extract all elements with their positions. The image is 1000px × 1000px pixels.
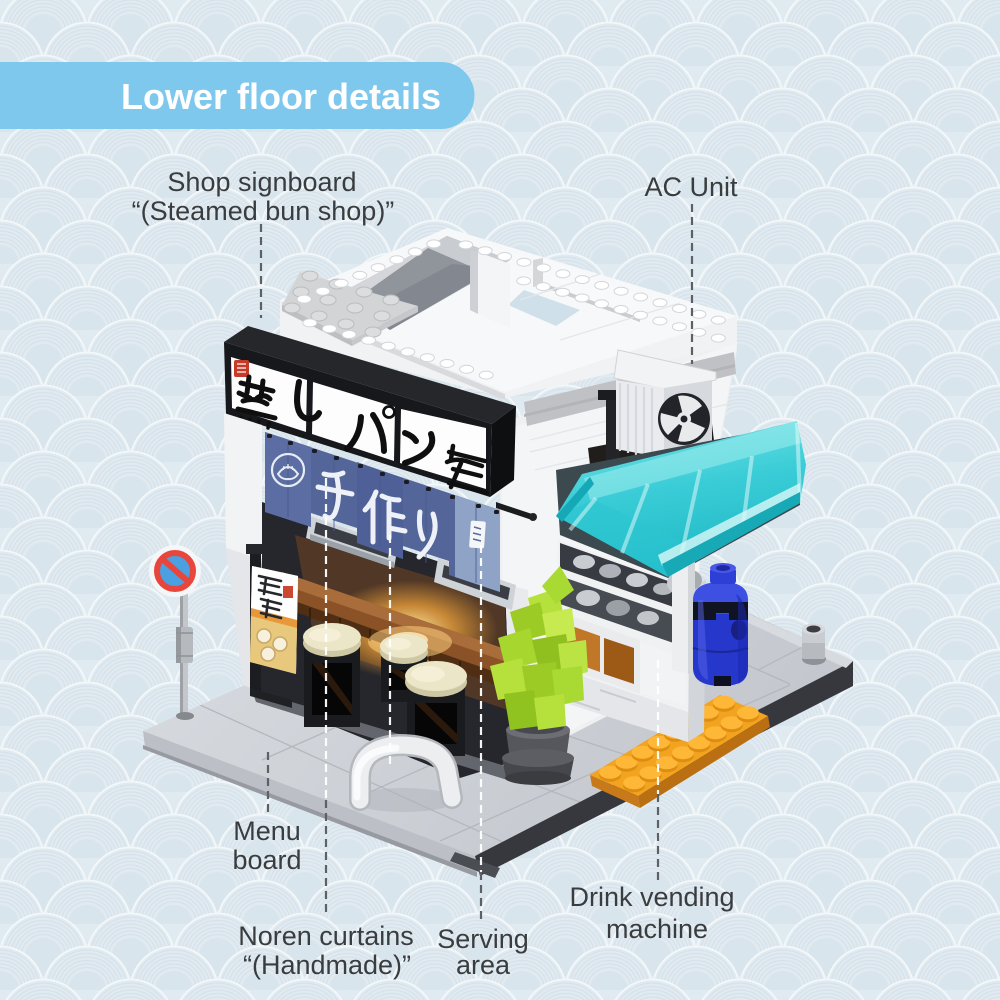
svg-text:Shop signboard: Shop signboard	[167, 167, 356, 197]
svg-text:Drink vending: Drink vending	[569, 882, 734, 912]
svg-text:Noren curtains: Noren curtains	[238, 921, 414, 951]
svg-text:area: area	[456, 950, 511, 980]
svg-text:machine: machine	[606, 914, 708, 944]
svg-text:Lower floor details: Lower floor details	[121, 76, 441, 117]
svg-text:board: board	[232, 845, 301, 875]
svg-text:“(Steamed bun shop)”: “(Steamed bun shop)”	[132, 196, 395, 226]
svg-text:Menu: Menu	[233, 816, 301, 846]
svg-text:AC Unit: AC Unit	[644, 172, 738, 202]
svg-text:“(Handmade)”: “(Handmade)”	[243, 950, 411, 980]
